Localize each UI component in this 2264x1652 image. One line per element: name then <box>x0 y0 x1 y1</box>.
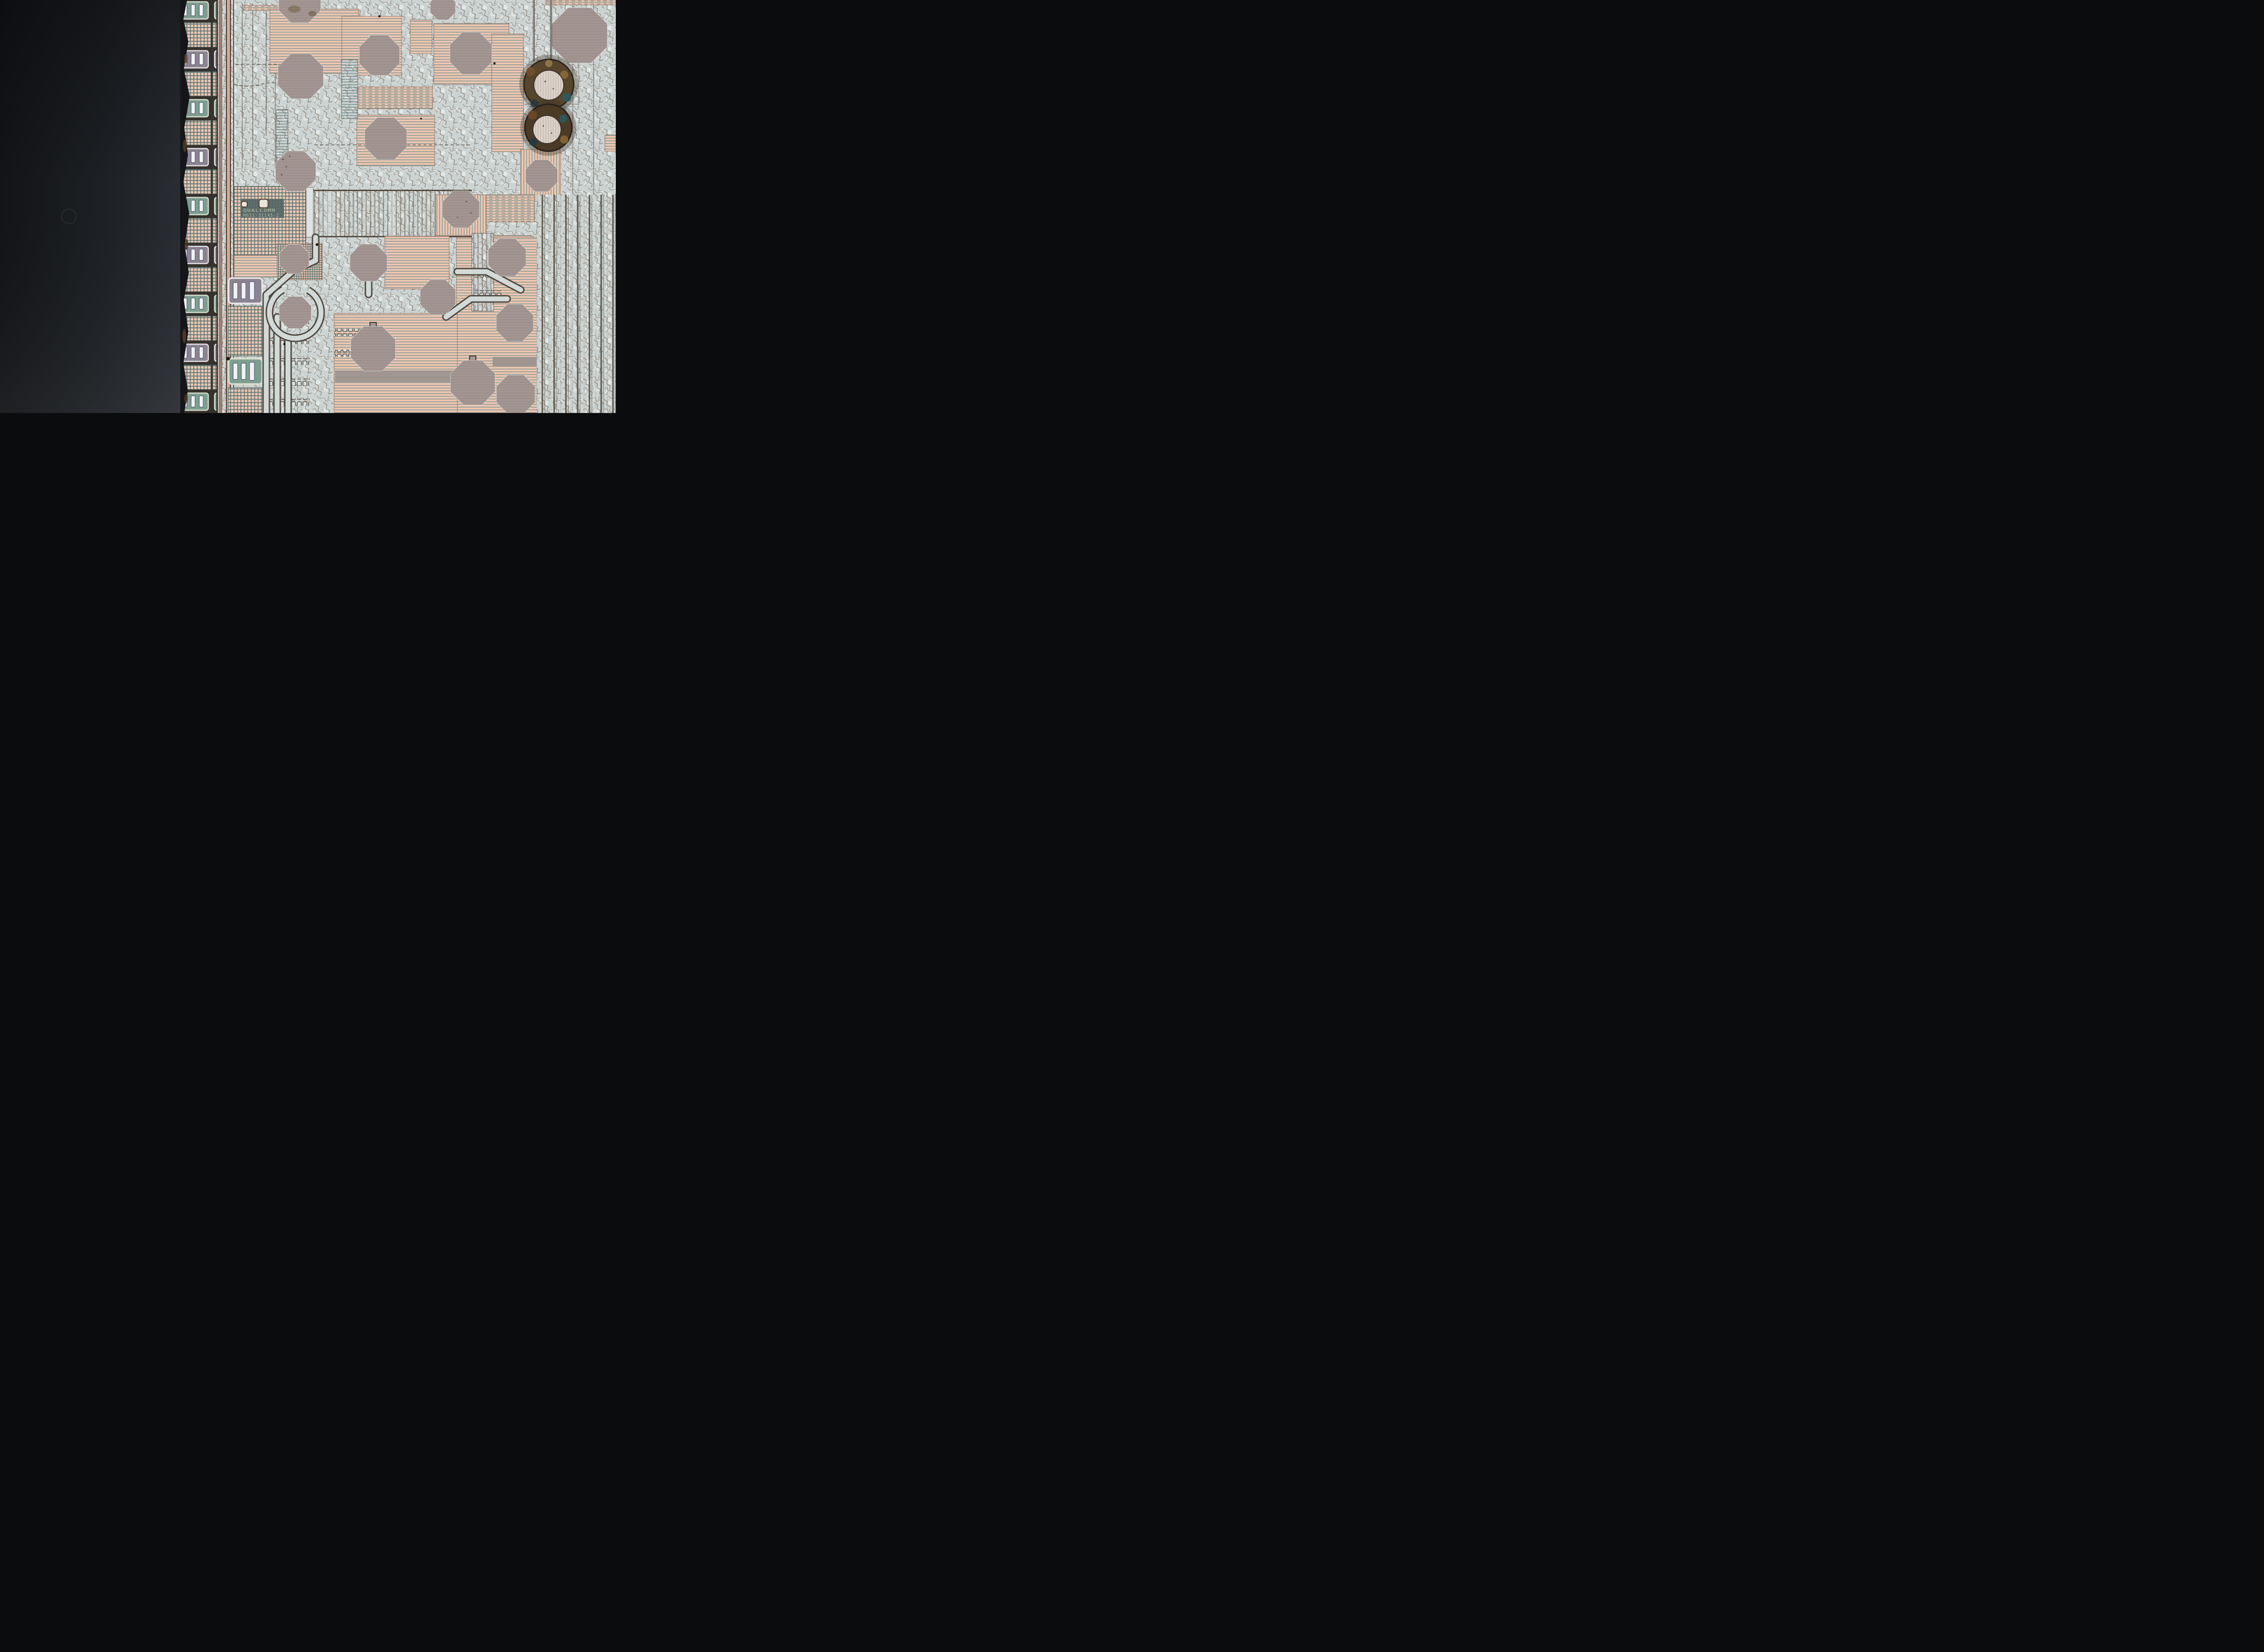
octagon-pad <box>279 297 311 328</box>
octagon-pad <box>420 279 456 315</box>
die-photomicrograph: QUALCOMM HG11-31145-2 <box>0 0 616 413</box>
pink-bus-bar <box>546 0 616 5</box>
octagon-pad <box>496 304 533 341</box>
die-photo-canvas: QUALCOMM HG11-31145-2 <box>0 0 616 413</box>
octagon-pad <box>278 53 323 99</box>
pink-panel <box>410 20 432 53</box>
octagon-pad-large <box>552 8 607 63</box>
octagon-pad <box>350 244 387 281</box>
edge-pad-cell <box>229 359 262 384</box>
probe-blob <box>259 199 268 208</box>
octagon-pad <box>451 360 495 405</box>
octagon-pad <box>351 327 395 371</box>
octagon-pad <box>360 35 400 76</box>
pink-bus-band <box>350 87 432 109</box>
octagon-pad <box>497 375 535 413</box>
die-marking-line2: HG11-31145-2 <box>243 214 279 218</box>
pink-grid-block <box>228 306 264 356</box>
vertical-bar-zone <box>537 195 616 413</box>
metal-strip <box>306 187 313 237</box>
octagon-pad-speckled <box>442 191 479 227</box>
die-edge-pad-column <box>180 0 216 413</box>
probe-blob <box>241 202 247 207</box>
die-edge-dark-region <box>0 0 183 413</box>
octagon-pad <box>365 118 407 159</box>
gray-band <box>493 357 538 367</box>
pink-panel <box>234 255 279 277</box>
octagon-pad <box>280 245 309 274</box>
pink-column <box>492 34 523 152</box>
circuit-metal-field: QUALCOMM HG11-31145-2 <box>226 0 616 413</box>
octagon-pad <box>526 160 557 192</box>
octagon-pad-speckled <box>276 151 316 192</box>
corrosion-ring-bottom <box>523 102 574 154</box>
pink-sliver <box>605 135 616 151</box>
die-marking-line1: QUALCOMM <box>243 208 276 213</box>
pink-panel <box>334 313 457 413</box>
octagon-pad <box>450 33 492 74</box>
seam-copper-band <box>219 0 222 413</box>
octagon-pad <box>488 238 526 276</box>
pink-grid-block <box>228 388 264 413</box>
dust-speck <box>108 355 112 359</box>
edge-pad-cell <box>229 278 262 303</box>
